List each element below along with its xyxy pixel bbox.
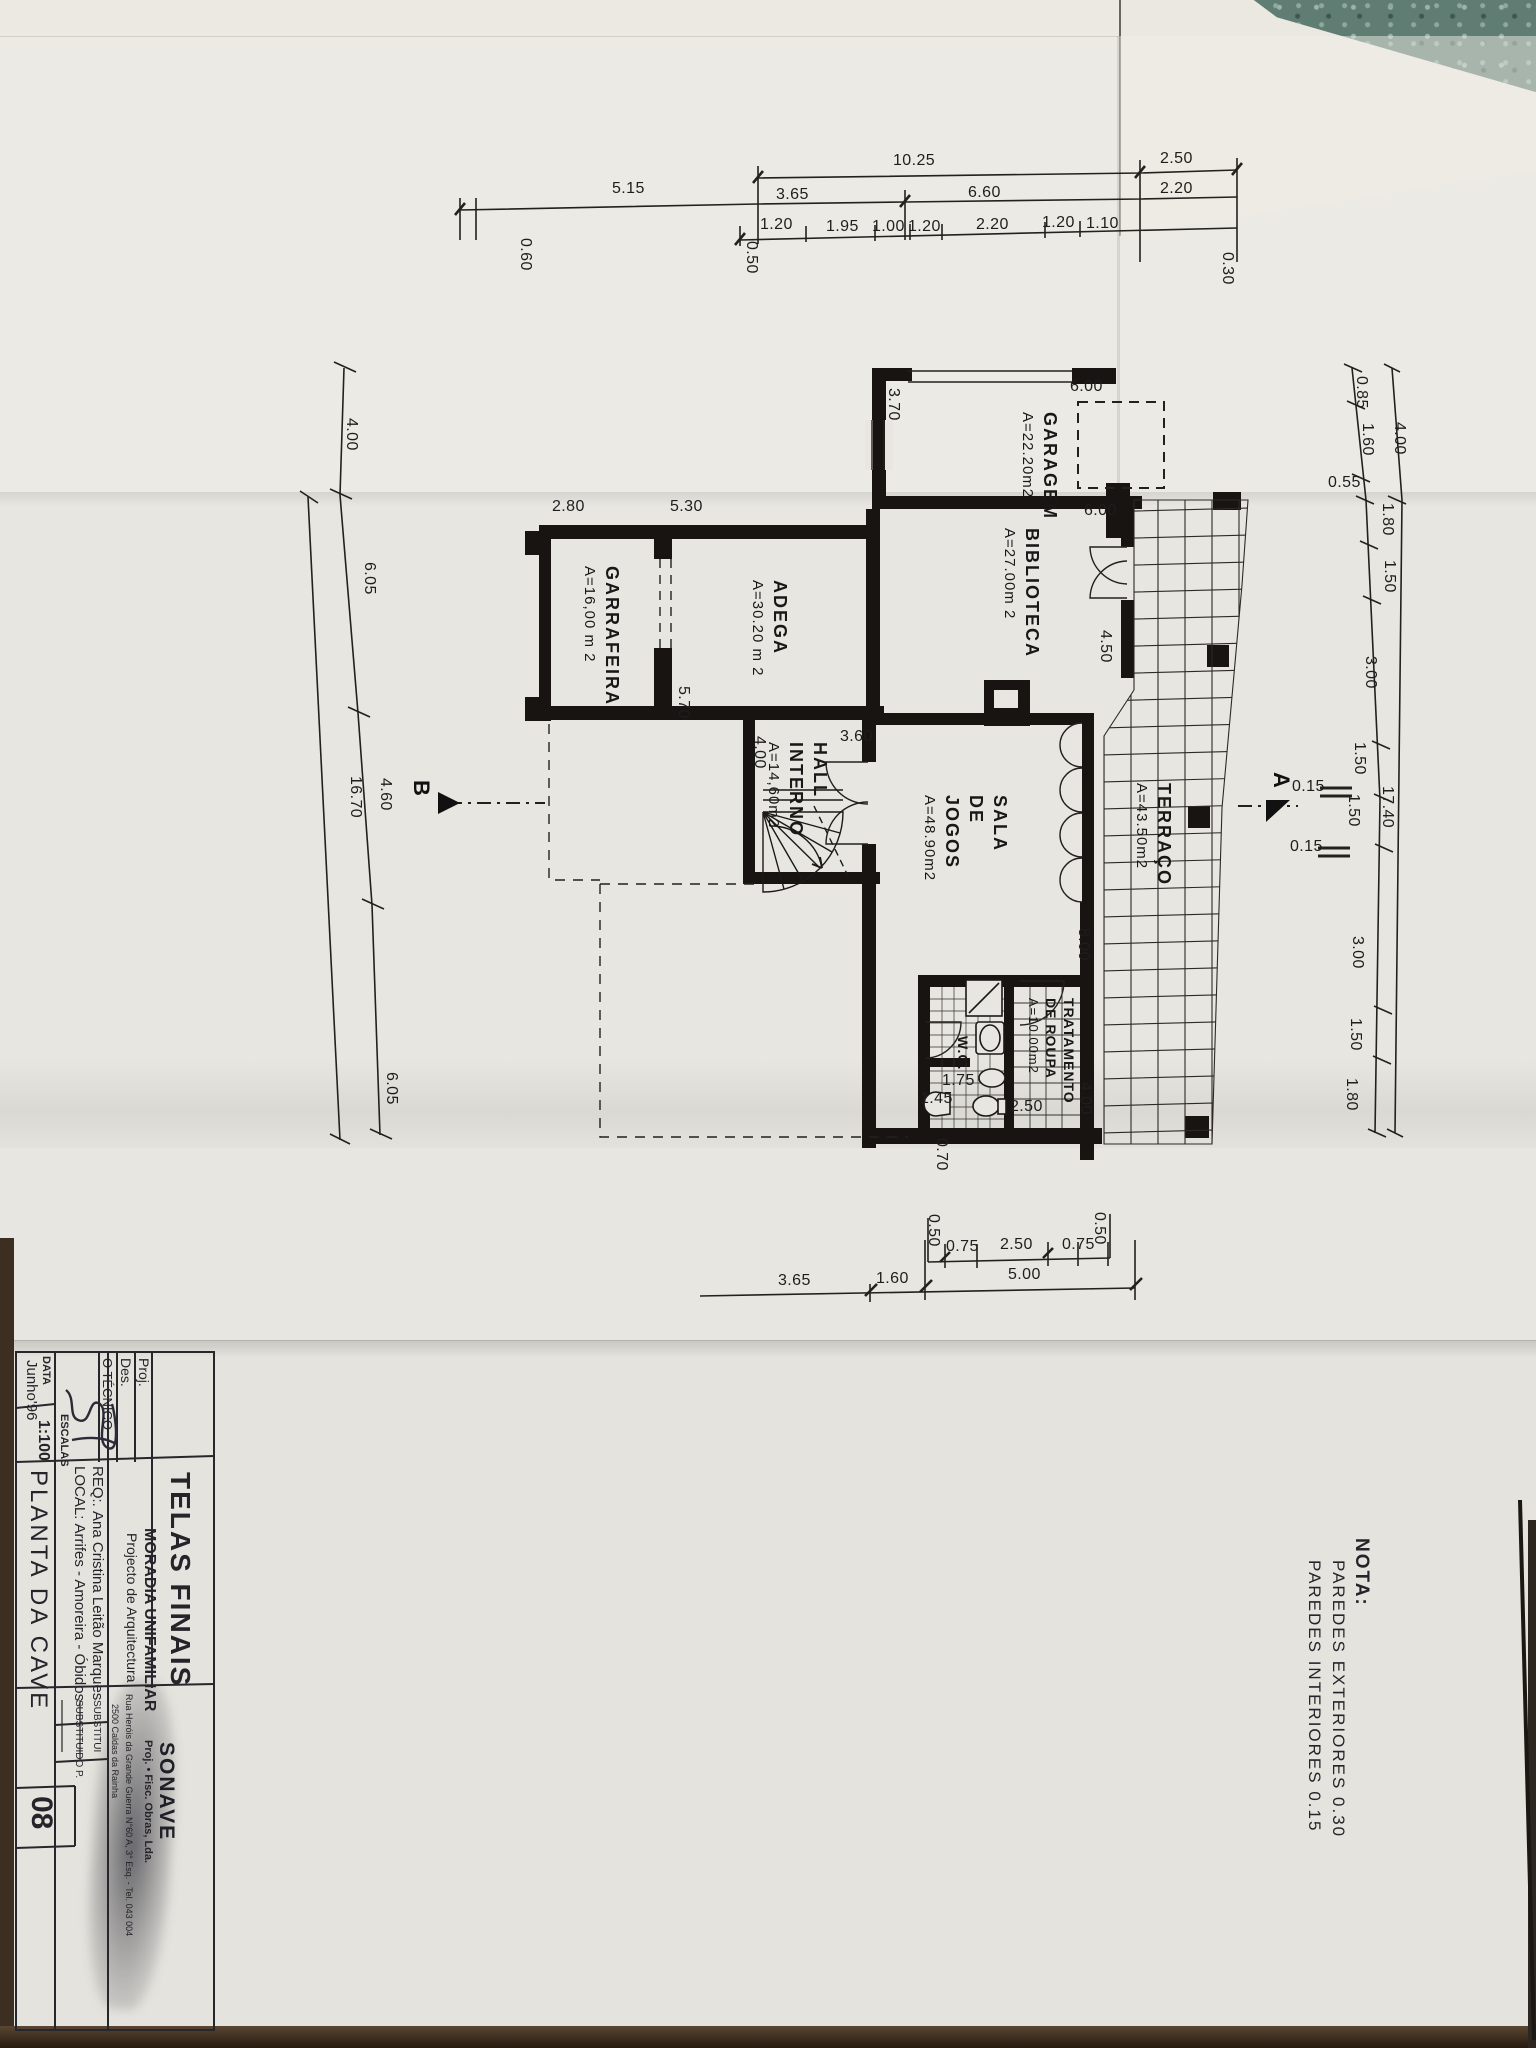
room-label-biblioteca: BIBLIOTECA A=27.00m 2 [998,528,1044,658]
dimension-label: 0.50 [742,241,760,274]
note-title: NOTA: [1350,1538,1372,1607]
escalas-value: 1:100 [34,1420,52,1461]
sheet-title: TELAS FINAIS [164,1472,196,1687]
room-label-garagem: GARAGEM A=22.20m2 [1016,412,1062,520]
dimension-label: 3.00 [1348,936,1366,969]
dimension-label: 0.50 [1090,1212,1108,1245]
dimension-label: 4.00 [342,418,360,451]
dimension-label: 0.60 [516,238,534,271]
company-subtitle: Proj. • Fisc. Obras, Lda. [142,1740,154,1863]
sheet-number: 08 [24,1796,58,1829]
dimension-label: 8.00 [1074,928,1092,961]
photo-of-floor-plan: { "note": { "title": "NOTA:", "line1": "… [0,0,1536,2048]
dimension-label: 3.65 [776,186,809,204]
room-label-terraco: TERRAÇO A=43.50m2 [1130,783,1176,886]
section-marker-b: B [408,780,434,796]
dimension-label: 16.70 [346,776,364,818]
drawing-title: PLANTA DA CAVE [24,1470,52,1711]
dimension-label: 5.15 [612,180,645,198]
dimension-label: 1.45 [920,1090,953,1108]
data-value: Junho'96 [23,1360,40,1420]
tecnico-label: O TÉCNICO [100,1358,115,1430]
dimension-label: 3.60 [840,728,873,746]
dimension-label: 1.80 [1342,1078,1360,1111]
dimension-label: 1.10 [1086,215,1119,233]
company-address-1: Rua Heróis da Grande Guerra N°60 A, 3° E… [124,1694,134,1936]
dimension-label: 1.80 [1378,503,1396,536]
company-name: SONAVE [154,1742,178,1841]
dimension-label: 1.20 [1042,214,1075,232]
dimension-label: 6.00 [1084,502,1117,520]
proj-label: Proj. [136,1358,152,1387]
dimension-label: 5.00 [1008,1266,1041,1284]
dimension-label: 3.70 [884,388,902,421]
escalas-label: ESCALAS [58,1414,70,1467]
dimension-label: 5.30 [670,498,703,516]
dimension-label: 6.00 [1070,378,1103,396]
dimension-label: 1.20 [908,218,941,236]
room-label-adega: ADEGA A=30.20 m 2 [746,580,792,676]
dimension-label: 6.05 [382,1072,400,1105]
room-label-hall-interno: HALL INTERNO A=14,60m2 [762,742,832,837]
dimension-label: 1.00 [872,218,905,236]
local-line: LOCAL: Arrifes - Amoreira - Óbidos [71,1466,88,1701]
des-label: Des. [118,1358,134,1387]
room-label-sala-de-jogos: SALA DE JOGOS A=48.90m2 [918,795,1012,881]
dimension-label: 1.50 [1350,742,1368,775]
dimension-label: 17.40 [1378,786,1396,828]
dimension-label: 0.30 [1218,252,1236,285]
dimension-label: 3.65 [778,1272,811,1290]
dimension-label: 2.50 [1000,1236,1033,1254]
dimension-label: 4.60 [376,778,394,811]
note-line-1: PAREDES EXTERIORES 0.30 [1328,1560,1348,1838]
note-line-2: PAREDES INTERIORES 0.15 [1304,1560,1324,1832]
dimension-label: 1.50 [1346,1018,1364,1051]
dimension-label: 6.05 [360,562,378,595]
dimension-label: 1.60 [1358,423,1376,456]
dimension-label: 2.20 [1160,180,1193,198]
substitui-label: SUBSTITUI [91,1700,102,1752]
substituido-label: SUBSTITUIDO P. [73,1700,84,1778]
dimension-label: 1.95 [826,218,859,236]
dimension-label: 6.60 [968,184,1001,202]
dimension-label: 4.00 [1076,1082,1094,1115]
wall-thickness-label: 0.15 [1290,838,1323,856]
dimension-label: 5.70 [674,686,692,719]
project-title: MORADIA UNIFAMILIAR [140,1528,158,1711]
dimension-label: 1.20 [760,216,793,234]
room-label-garrafeira: GARRAFEIRA A=16,00 m 2 [578,566,624,706]
company-address-2: 2500 Caldas da Rainha [110,1704,120,1798]
dimension-label: 1.75 [942,1072,975,1090]
dimension-label: 0.70 [932,1138,950,1171]
dimension-label: 1.50 [1344,794,1362,827]
dimension-label: 4.00 [1390,422,1408,455]
data-label: DATA [40,1356,52,1385]
dimension-label: 2.20 [976,216,1009,234]
req-line: REQ:. Ana Cristina Leitão Marques [89,1466,106,1700]
dimension-label: 10.25 [893,152,935,170]
dimension-label: 2.80 [552,498,585,516]
section-marker-a: A [1268,772,1294,788]
dimension-label: 1.50 [1380,560,1398,593]
room-label-tratamento-de-roupa: TRATAMENTO DE ROUPA A=10.00m2 [1025,998,1078,1104]
dimension-label: 0.85 [1352,376,1370,409]
project-subtitle: Projecto de Arquitectura [124,1533,140,1682]
wall-thickness-label: 0.15 [1292,778,1325,796]
dimension-label: 0.55 [1328,474,1361,492]
dimension-label: 4.50 [1096,630,1114,663]
dimension-label: 2.50 [1160,150,1193,168]
dimension-label: 0.75 [946,1238,979,1256]
dimension-label: 1.60 [876,1270,909,1288]
dimension-label: 3.00 [1361,656,1379,689]
room-label-wc: W.C. [954,1036,972,1070]
dimension-label: 0.50 [924,1214,942,1247]
